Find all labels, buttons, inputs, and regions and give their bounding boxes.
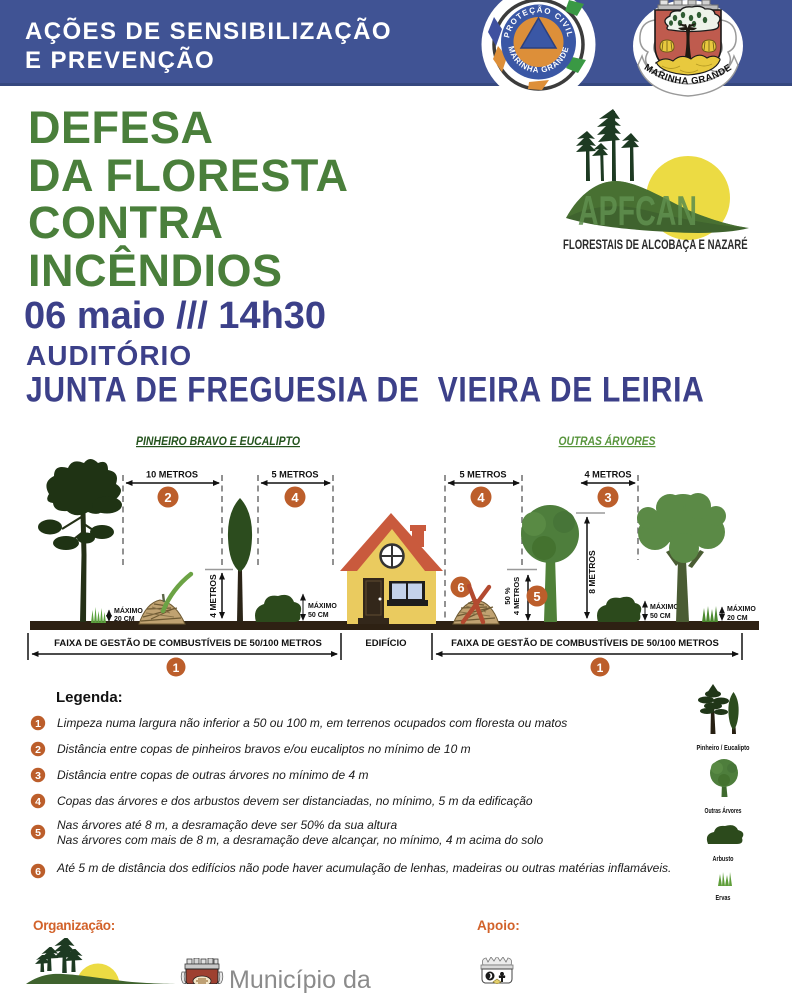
svg-text:6: 6 <box>35 866 41 878</box>
svg-text:4: 4 <box>291 490 299 505</box>
svg-text:50 CM: 50 CM <box>308 612 329 619</box>
svg-text:Outras Árvores: Outras Árvores <box>705 806 742 815</box>
svg-text:EDIFÍCIO: EDIFÍCIO <box>365 638 406 649</box>
svg-text:5: 5 <box>35 827 41 839</box>
svg-text:FLORESTAIS DE ALCOBAÇA E NAZAR: FLORESTAIS DE ALCOBAÇA E NAZARÉ <box>563 236 748 252</box>
svg-text:Pinheiro / Eucalipto: Pinheiro / Eucalipto <box>697 743 750 752</box>
svg-text:Distância entre copas de outra: Distância entre copas de outras árvores … <box>57 768 368 782</box>
svg-text:2: 2 <box>35 744 41 756</box>
svg-text:1: 1 <box>173 661 180 675</box>
svg-text:1: 1 <box>35 718 41 730</box>
svg-text:5 METROS: 5 METROS <box>272 470 319 480</box>
svg-text:MÁXIMO: MÁXIMO <box>114 606 143 615</box>
svg-text:MÁXIMO: MÁXIMO <box>650 602 679 611</box>
svg-text:MÁXIMO: MÁXIMO <box>727 604 756 613</box>
svg-text:20 CM: 20 CM <box>727 615 748 622</box>
svg-text:4 METROS: 4 METROS <box>585 470 632 480</box>
svg-text:2: 2 <box>164 490 171 505</box>
svg-text:Distância entre copas de pinhe: Distância entre copas de pinheiros bravo… <box>57 742 471 756</box>
svg-text:Copas das árvores e dos arbust: Copas das árvores e dos arbustos devem s… <box>57 794 533 808</box>
svg-text:50 CM: 50 CM <box>650 613 671 620</box>
svg-text:OUTRAS ÁRVORES: OUTRAS ÁRVORES <box>559 433 656 448</box>
svg-text:8 METROS: 8 METROS <box>587 550 597 594</box>
svg-text:Arbusto: Arbusto <box>713 854 734 863</box>
svg-text:FAIXA DE GESTÃO DE COMBUSTÍVEI: FAIXA DE GESTÃO DE COMBUSTÍVEIS DE 50/10… <box>451 638 719 649</box>
svg-text:20 CM: 20 CM <box>114 616 135 623</box>
svg-text:Nas árvores até 8 m, a desrama: Nas árvores até 8 m, a desramação deve s… <box>57 818 398 832</box>
svg-text:5 METROS: 5 METROS <box>460 470 507 480</box>
svg-text:PINHEIRO BRAVO E EUCALIPTO: PINHEIRO BRAVO E EUCALIPTO <box>136 434 301 448</box>
svg-text:Ervas: Ervas <box>716 893 731 902</box>
svg-text:Limpeza numa largura não infer: Limpeza numa largura não inferior a 50 o… <box>57 716 567 730</box>
svg-text:MÁXIMO: MÁXIMO <box>308 601 337 610</box>
svg-text:3: 3 <box>35 770 41 782</box>
svg-text:50 %: 50 % <box>503 587 512 604</box>
svg-text:Nas árvores com mais de 8 m, a: Nas árvores com mais de 8 m, a desramaçã… <box>57 833 544 847</box>
svg-text:5: 5 <box>533 589 540 604</box>
svg-text:10 METROS: 10 METROS <box>146 470 198 480</box>
svg-text:4 METROS: 4 METROS <box>208 574 218 618</box>
svg-text:4 METROS: 4 METROS <box>512 577 521 615</box>
svg-text:APFCAN: APFCAN <box>578 187 697 234</box>
svg-text:Até 5 m de distância dos edifí: Até 5 m de distância dos edifícios não p… <box>56 861 671 875</box>
svg-text:FAIXA DE GESTÃO DE COMBUSTÍVEI: FAIXA DE GESTÃO DE COMBUSTÍVEIS DE 50/10… <box>54 638 322 649</box>
svg-text:1: 1 <box>597 661 604 675</box>
svg-text:4: 4 <box>477 490 485 505</box>
svg-text:6: 6 <box>457 580 464 595</box>
svg-text:4: 4 <box>35 796 41 808</box>
svg-text:3: 3 <box>604 490 611 505</box>
